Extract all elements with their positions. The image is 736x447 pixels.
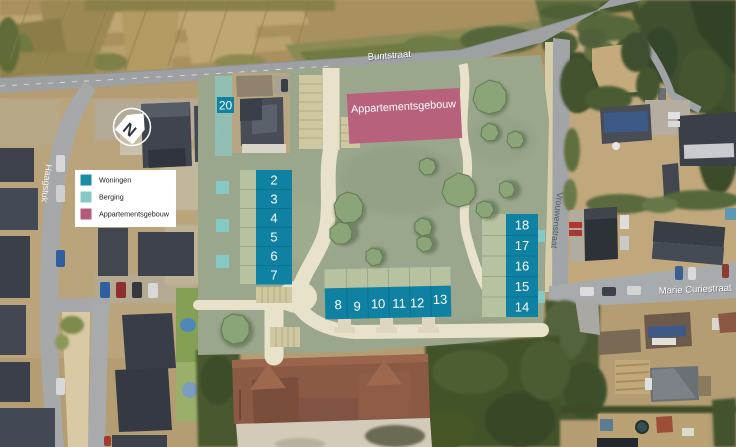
svg-text:11: 11 [392, 296, 406, 311]
svg-text:20: 20 [219, 99, 233, 113]
svg-text:5: 5 [270, 230, 277, 245]
svg-text:17: 17 [515, 238, 529, 253]
svg-text:16: 16 [515, 259, 529, 274]
svg-text:3: 3 [270, 192, 277, 207]
svg-text:Appartementsgebouw: Appartementsgebouw [99, 210, 170, 219]
svg-text:4: 4 [270, 211, 277, 226]
svg-text:9: 9 [353, 299, 361, 314]
svg-text:2: 2 [270, 173, 277, 188]
svg-text:18: 18 [515, 218, 529, 233]
svg-text:6: 6 [270, 249, 277, 264]
svg-text:10: 10 [371, 296, 386, 311]
svg-text:13: 13 [433, 292, 448, 307]
svg-text:12: 12 [410, 295, 425, 310]
svg-text:14: 14 [515, 300, 529, 315]
svg-text:7: 7 [270, 268, 277, 283]
svg-text:15: 15 [515, 279, 529, 294]
svg-text:Berging: Berging [99, 193, 124, 202]
svg-text:Woningen: Woningen [99, 176, 131, 185]
svg-text:8: 8 [334, 297, 342, 312]
